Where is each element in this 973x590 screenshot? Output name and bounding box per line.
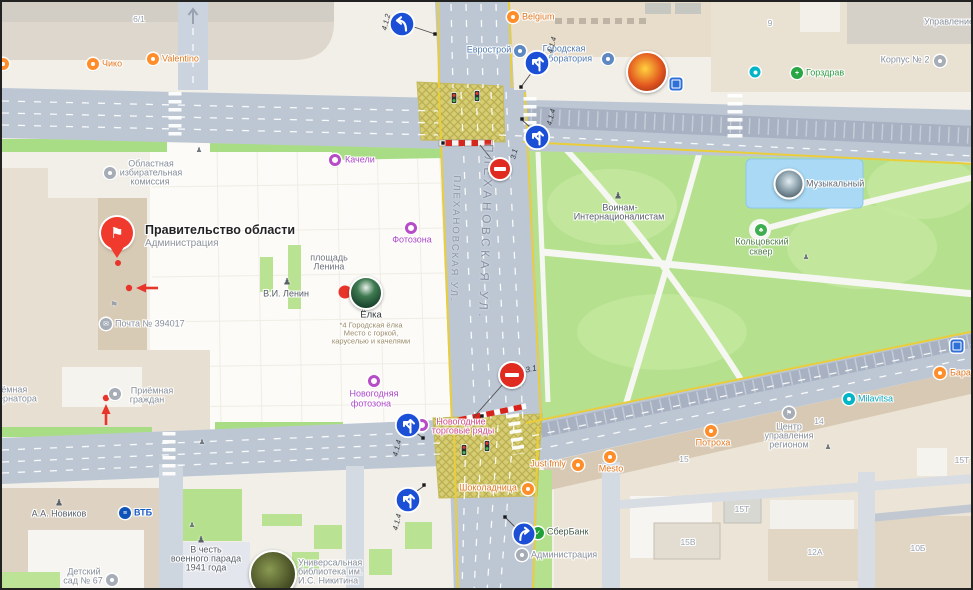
photo-marker-eatery[interactable] bbox=[626, 51, 668, 93]
poi-label-muzykalny[interactable]: Музыкальный bbox=[806, 180, 864, 189]
sign-4-1-4-straight-left[interactable] bbox=[524, 124, 551, 151]
korpus2-icon[interactable] bbox=[934, 55, 946, 67]
oblast-commission-icon[interactable] bbox=[104, 167, 116, 179]
house-number: 15Т bbox=[955, 456, 970, 465]
statue-icon: ♟ bbox=[825, 443, 831, 451]
statue-icon: ♟ bbox=[803, 253, 809, 261]
just-fmly-icon[interactable] bbox=[572, 459, 584, 471]
poi-label-vtb[interactable]: ВТБ bbox=[134, 509, 152, 518]
poi-label-milavitsa[interactable]: Milavitsa bbox=[858, 395, 893, 404]
statue-icon: ♟ bbox=[196, 146, 202, 154]
poi-label-lenin[interactable]: В.И. Ленин bbox=[263, 290, 309, 299]
poi-label-administratsiya[interactable]: Администрация bbox=[531, 551, 597, 560]
house-number: 9 bbox=[768, 19, 773, 28]
potroha-icon[interactable] bbox=[705, 425, 717, 437]
transit-icon[interactable] bbox=[670, 78, 683, 91]
kacheli-icon[interactable] bbox=[329, 154, 341, 166]
poi-label-novikov[interactable]: А.А. Новиков bbox=[32, 510, 87, 519]
house-number: 6/1 bbox=[133, 15, 145, 24]
flag-icon: ⚑ bbox=[110, 226, 123, 241]
sign-4-1-2-turn-left[interactable] bbox=[389, 11, 416, 38]
house-number: 10Б bbox=[910, 544, 925, 553]
sign-3-1-no-entry[interactable] bbox=[498, 361, 526, 389]
shokoladnitsa-icon[interactable] bbox=[522, 483, 534, 495]
poi-label-centr-upravleniya[interactable]: регионом bbox=[769, 441, 809, 450]
sign-3-1-no-entry[interactable] bbox=[488, 157, 512, 181]
sign-4-1-4-straight-left[interactable] bbox=[395, 487, 422, 514]
poi-sublabel-elka: каруселью и качелями bbox=[332, 337, 410, 345]
poi-label-kacheli[interactable]: Качели bbox=[345, 156, 375, 165]
poi-label-voinam[interactable]: Интернационалистам bbox=[574, 213, 665, 222]
square-label-ploshchad-lenina: Ленина bbox=[314, 263, 345, 272]
pochta-icon[interactable]: ✉ bbox=[100, 318, 112, 330]
administratsiya-icon[interactable] bbox=[516, 549, 528, 561]
poi-label-detsad[interactable]: сад № 67 bbox=[63, 577, 102, 586]
house-number: 15В bbox=[680, 538, 695, 547]
house-number: 15 bbox=[679, 455, 688, 464]
bara-icon[interactable] bbox=[934, 367, 946, 379]
landmark-title[interactable]: Правительство области bbox=[145, 224, 295, 237]
poi-label-upravlenie: Управление bbox=[924, 18, 973, 27]
poi-label-biblioteka[interactable]: И.С. Никитина bbox=[298, 577, 358, 586]
poi-label-fotozona[interactable]: Фотозона bbox=[392, 236, 432, 245]
park-tree-icon[interactable]: ♣ bbox=[755, 224, 767, 236]
sign-4-1-4-straight-left[interactable] bbox=[395, 412, 422, 439]
poi-label-mesto[interactable]: Mesto bbox=[599, 465, 624, 474]
flag-icon: ⚑ bbox=[110, 300, 118, 311]
gorzdrav-icon[interactable]: + bbox=[791, 67, 803, 79]
poi-label-gorzdrav[interactable]: Горздрав bbox=[806, 69, 844, 78]
map-canvas[interactable]: ПЛЕХАНОВСКАЯ УЛ. ПЛЕХАНОВСКАЯ УЛ. 4.1.2 … bbox=[0, 0, 973, 590]
chiko-icon[interactable] bbox=[87, 58, 99, 70]
poi-label-chiko[interactable]: Чико bbox=[102, 60, 122, 69]
milavitsa-icon[interactable] bbox=[843, 393, 855, 405]
government-pin[interactable]: ⚑ bbox=[101, 217, 133, 249]
ng-fotozona-icon[interactable] bbox=[368, 375, 380, 387]
poi-label-parad-1941[interactable]: 1941 года bbox=[186, 564, 227, 573]
poi-label-ng-fotozona[interactable]: фотозона bbox=[351, 400, 391, 409]
house-number: 12А bbox=[807, 548, 822, 557]
poi-label-ng-fotozona[interactable]: Новогодняя bbox=[349, 390, 398, 399]
poi-label-oblast-commission[interactable]: комиссия bbox=[130, 178, 169, 187]
centr-upravleniya-icon[interactable]: ⚑ bbox=[783, 407, 795, 419]
lenin-monument-icon: ♟ bbox=[283, 277, 291, 288]
poi-label-sberbank[interactable]: СберБанк bbox=[547, 528, 588, 537]
priemnaya-grazhdan-icon[interactable] bbox=[109, 388, 121, 400]
mesto-icon[interactable] bbox=[604, 451, 616, 463]
sign-4-1-4-straight-left[interactable] bbox=[524, 50, 551, 77]
sign-turn-right[interactable] bbox=[512, 522, 537, 547]
poi-label-elka[interactable]: Ёлка bbox=[360, 310, 382, 320]
gorlab-icon[interactable] bbox=[602, 53, 614, 65]
park-label-koltsovsky[interactable]: Кольцовский bbox=[735, 238, 788, 247]
poi-label-potroha[interactable]: Потроха bbox=[696, 439, 731, 448]
photo-marker-elka[interactable] bbox=[349, 276, 383, 310]
house-number: 15Т bbox=[735, 505, 750, 514]
poi-label-shokoladnitsa[interactable]: Шоколадница bbox=[459, 484, 517, 493]
statue-icon: ♟ bbox=[189, 521, 195, 529]
poi-label-valentino[interactable]: Valentino bbox=[162, 55, 199, 64]
poi-label-ng-torg[interactable]: торговые ряды bbox=[432, 427, 494, 436]
poi-label-bara[interactable]: Бара bbox=[950, 369, 971, 378]
transit-icon[interactable] bbox=[951, 340, 964, 353]
valentino-icon[interactable] bbox=[147, 53, 159, 65]
landmark-subtitle: Администрация bbox=[145, 239, 219, 249]
detsad-icon[interactable] bbox=[106, 574, 118, 586]
voinam-monument-icon: ♟ bbox=[614, 191, 622, 202]
poi-icon-teal[interactable] bbox=[750, 67, 761, 78]
statue-icon: ♟ bbox=[199, 438, 205, 446]
poi-label-korpus2: Корпус № 2 bbox=[881, 56, 930, 65]
belgium-icon[interactable] bbox=[507, 11, 519, 23]
fotozona-icon[interactable] bbox=[405, 222, 417, 234]
novikov-monument-icon: ♟ bbox=[55, 498, 63, 509]
park-label-koltsovsky[interactable]: сквер bbox=[749, 248, 772, 257]
poi-label-just-fmly[interactable]: Just fmly bbox=[530, 460, 566, 469]
poi-label-belgium[interactable]: Belgium bbox=[522, 13, 555, 22]
photo-marker-muzykalny[interactable] bbox=[774, 169, 805, 200]
vtb-icon[interactable]: ≡ bbox=[119, 507, 131, 519]
photo-marker-library[interactable] bbox=[249, 550, 297, 590]
poi-label-priemnaya-gubernatora[interactable]: губернатора bbox=[0, 395, 37, 404]
poi-label-priemnaya-grazhdan[interactable]: граждан bbox=[130, 396, 165, 405]
poi-label-pochta[interactable]: Почта № 394017 bbox=[115, 320, 185, 329]
house-number: 14 bbox=[814, 417, 823, 426]
poi-label-evrostroy[interactable]: Еврострой bbox=[467, 46, 511, 55]
